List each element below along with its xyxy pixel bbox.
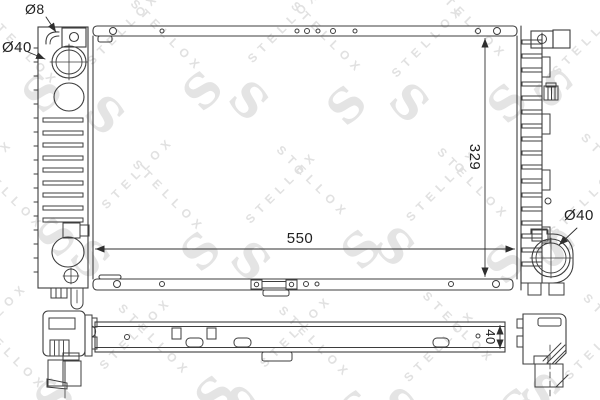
dim-label-d40-left: Ø40: [2, 39, 32, 56]
right-tank: [517, 26, 573, 295]
outlet-port-d40-bottom: [521, 229, 573, 283]
bottom-bar-holes: [114, 281, 500, 288]
core-top-bar: [93, 26, 517, 42]
left-tank-secondary-port: [54, 83, 84, 111]
bottom-mount-bracket: [251, 280, 297, 296]
left-edge-ticks: [34, 48, 38, 272]
radiator-drawing-page: SSTELLOXSSTELLOXSSTELLOXSSTELLOXSSTELLOX…: [0, 0, 600, 400]
left-tank-fitting: [63, 223, 89, 238]
right-tank-pin: [545, 198, 551, 204]
dimensions: [28, 17, 577, 349]
left-tank-ribs: [43, 118, 83, 222]
leader-d8: [46, 17, 56, 32]
dim-label-core-width: 550: [277, 230, 323, 247]
front-view: [34, 26, 573, 309]
bleed-screw: [544, 83, 558, 100]
radiator-line-art: [0, 0, 600, 400]
top-bar-holes: [110, 28, 501, 35]
plan-inlet-pipe: [47, 353, 81, 398]
right-tank-feet: [528, 283, 564, 295]
plan-left-tank: [43, 311, 97, 398]
plan-right-tank: [517, 314, 568, 398]
dim-label-core-height: 329: [465, 139, 483, 175]
dim-label-core-depth: 40: [482, 325, 498, 349]
drain-plug: [63, 268, 79, 284]
dim-label-d8: Ø8: [25, 1, 45, 17]
filler-neck-d8: [46, 28, 86, 47]
top-mount-bracket: [531, 30, 570, 48]
plan-bottom-tab: [262, 352, 292, 361]
dim-label-d40-right: Ø40: [564, 207, 594, 224]
left-tank-bottom-port: [52, 237, 84, 267]
inlet-port-d40-top: [50, 44, 88, 80]
left-tank-feet: [51, 288, 83, 309]
left-tank: [34, 27, 93, 309]
leader-d40-right: [559, 228, 577, 245]
plan-core-body: [95, 322, 505, 361]
core-bottom-bar: [93, 275, 513, 296]
